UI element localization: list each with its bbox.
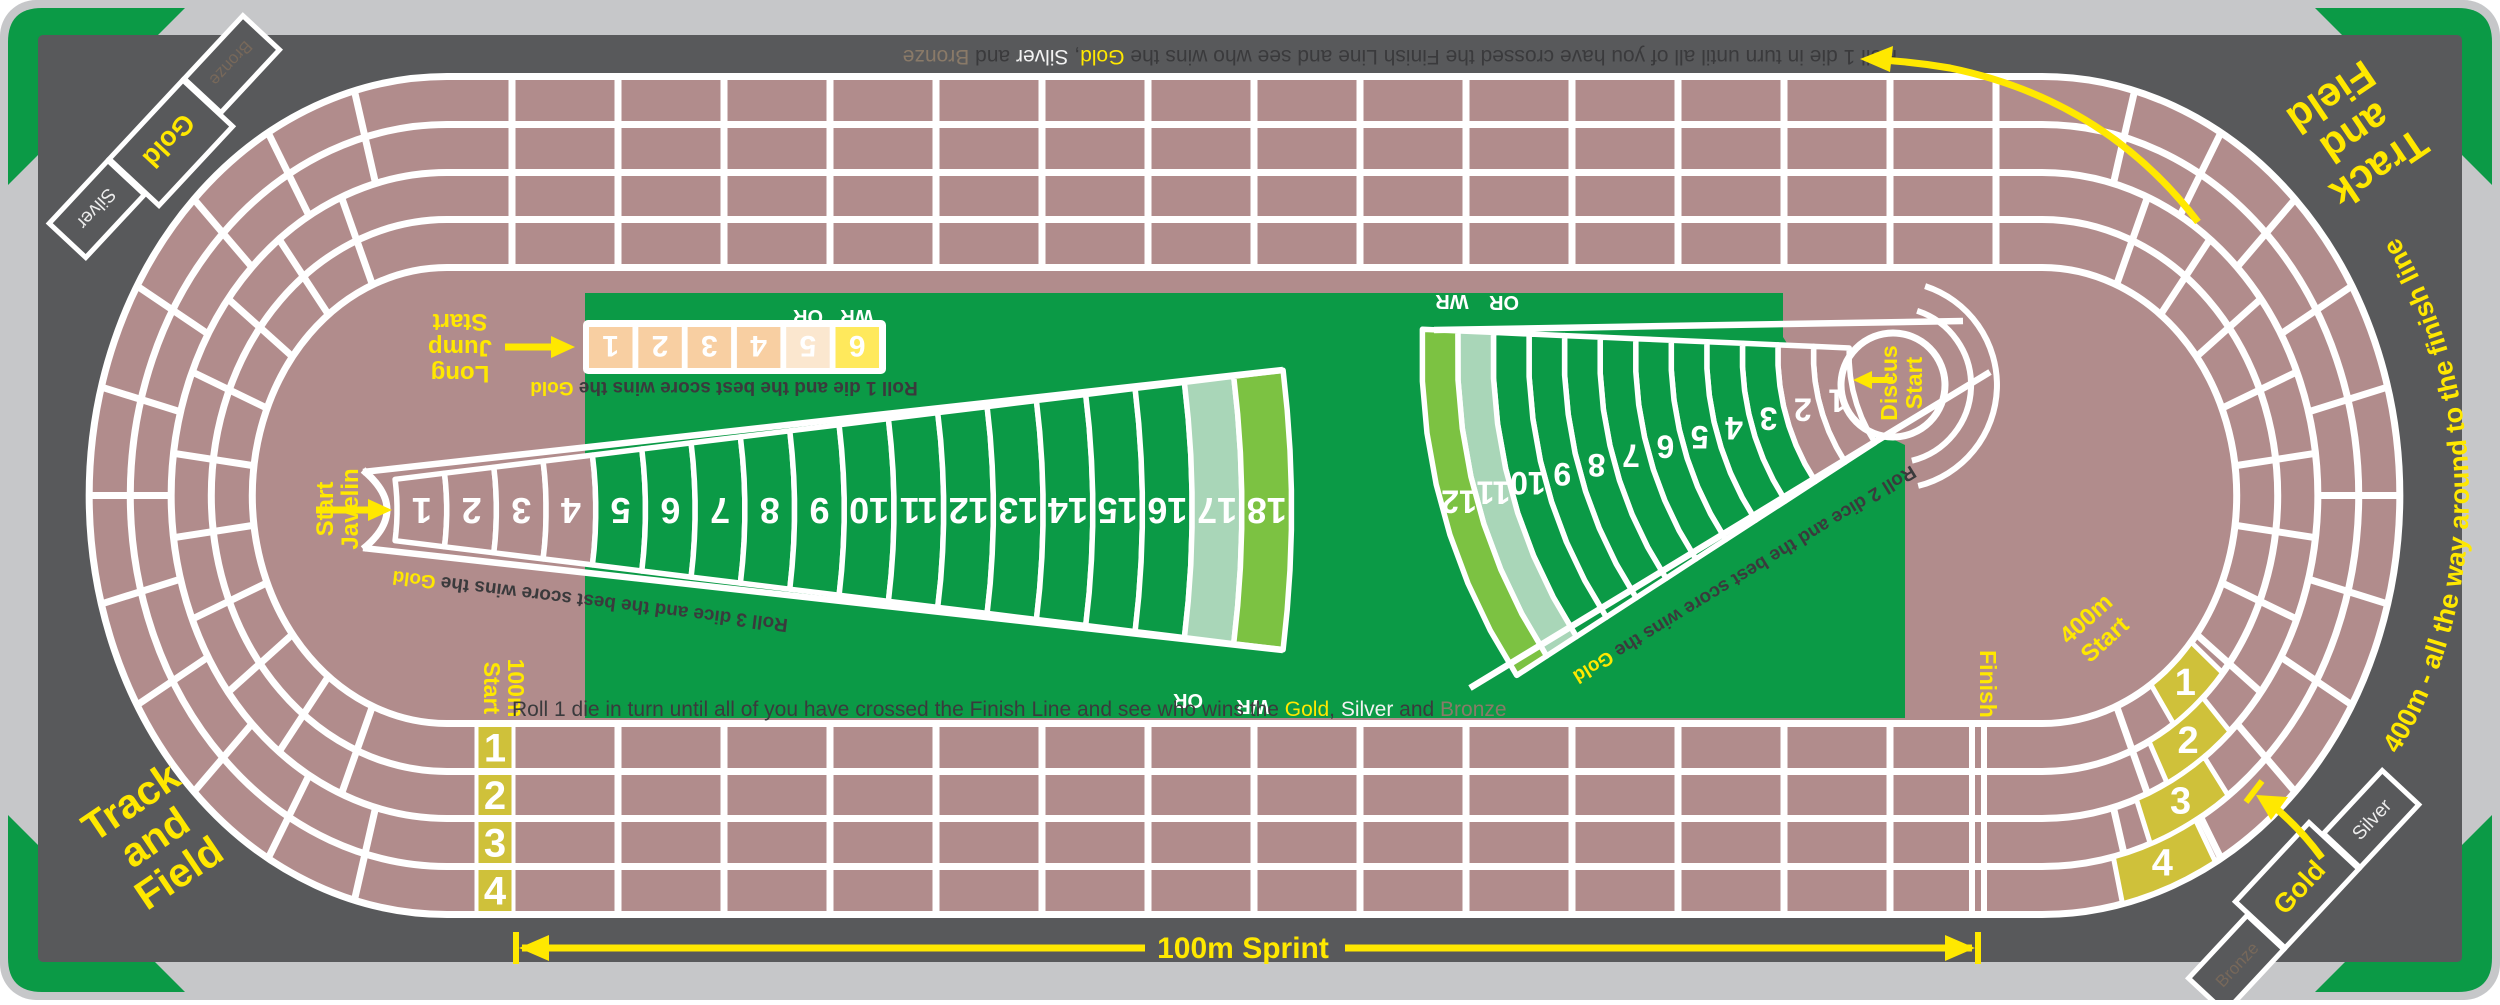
discus-number: 7 <box>1622 438 1640 474</box>
discus-number: 9 <box>1553 456 1571 492</box>
long-jump-number: 4 <box>750 329 767 362</box>
discus-number: 2 <box>1794 391 1812 427</box>
javelin-number: 2 <box>462 490 482 531</box>
instruction-bottom: Roll 1 die in turn until all of you have… <box>512 698 1507 721</box>
javelin-number: 7 <box>710 490 730 531</box>
start-100m-number: 4 <box>484 870 507 914</box>
long-jump-number: 5 <box>800 329 817 362</box>
discus-wr: WR <box>1435 290 1469 312</box>
label-100m-sprint: 100m Sprint <box>1157 932 1329 965</box>
discus-number: 8 <box>1588 447 1606 483</box>
long-jump-caption: Roll 1 die and the best score wins the G… <box>530 377 917 398</box>
javelin-number: 4 <box>561 490 581 531</box>
long-jump-or: OR <box>792 305 823 327</box>
discus-or: OR <box>1488 291 1519 313</box>
javelin-number: 14 <box>1048 490 1088 531</box>
discus-number: 3 <box>1760 401 1778 437</box>
javelin-number: 18 <box>1247 490 1287 531</box>
board-svg: 1234100mStart1234400mStartFinish123456OR… <box>0 0 2500 1000</box>
javelin-number: 1 <box>412 490 432 531</box>
start-400m-number: 3 <box>2170 781 2191 823</box>
label-long-jump: LongJumpStart <box>428 308 492 387</box>
start-400m-number: 1 <box>2175 662 2196 704</box>
label-100m-start: Start <box>479 662 505 715</box>
javelin-number: 3 <box>511 490 531 531</box>
long-jump-number: 3 <box>701 329 718 362</box>
javelin-number: 5 <box>611 490 631 531</box>
javelin-number: 9 <box>809 490 829 531</box>
start-400m-number: 4 <box>2152 843 2173 885</box>
javelin-number: 11 <box>900 490 938 531</box>
javelin-number: 15 <box>1098 490 1138 531</box>
start-100m-number: 2 <box>484 774 506 818</box>
label-finish: Finish <box>1975 650 2001 718</box>
javelin-number: 13 <box>998 490 1038 531</box>
javelin-number: 8 <box>760 490 780 531</box>
discus-number: 10 <box>1510 465 1546 501</box>
discus-number: 11 <box>1477 474 1511 510</box>
label-long-jump-line: Jump <box>428 334 492 361</box>
label-discus-start: Start <box>1901 356 1927 409</box>
label-long-jump-line: Long <box>431 360 490 387</box>
discus-number: 6 <box>1656 428 1674 464</box>
javelin-number: 10 <box>849 490 889 531</box>
discus-number: 12 <box>1441 484 1477 520</box>
long-jump-number: 2 <box>652 329 669 362</box>
long-jump-number: 6 <box>849 329 866 362</box>
label-long-jump-line: Start <box>433 308 488 335</box>
long-jump-wr: WR <box>840 305 874 327</box>
discus-number: 4 <box>1725 410 1743 446</box>
long-jump-number: 1 <box>602 329 619 362</box>
javelin-number: 12 <box>949 490 989 531</box>
track-and-field-board: 1234100mStart1234400mStartFinish123456OR… <box>0 0 2500 1000</box>
javelin-number: 6 <box>660 490 680 531</box>
javelin-number: 17 <box>1197 490 1237 531</box>
start-100m-number: 1 <box>484 727 506 771</box>
discus-number: 5 <box>1691 419 1709 455</box>
start-400m-number: 2 <box>2178 720 2199 762</box>
instruction-top: Roll 1 die in turn until all of you have… <box>903 45 1898 68</box>
start-100m-number: 3 <box>484 822 506 866</box>
javelin-number: 16 <box>1147 490 1187 531</box>
